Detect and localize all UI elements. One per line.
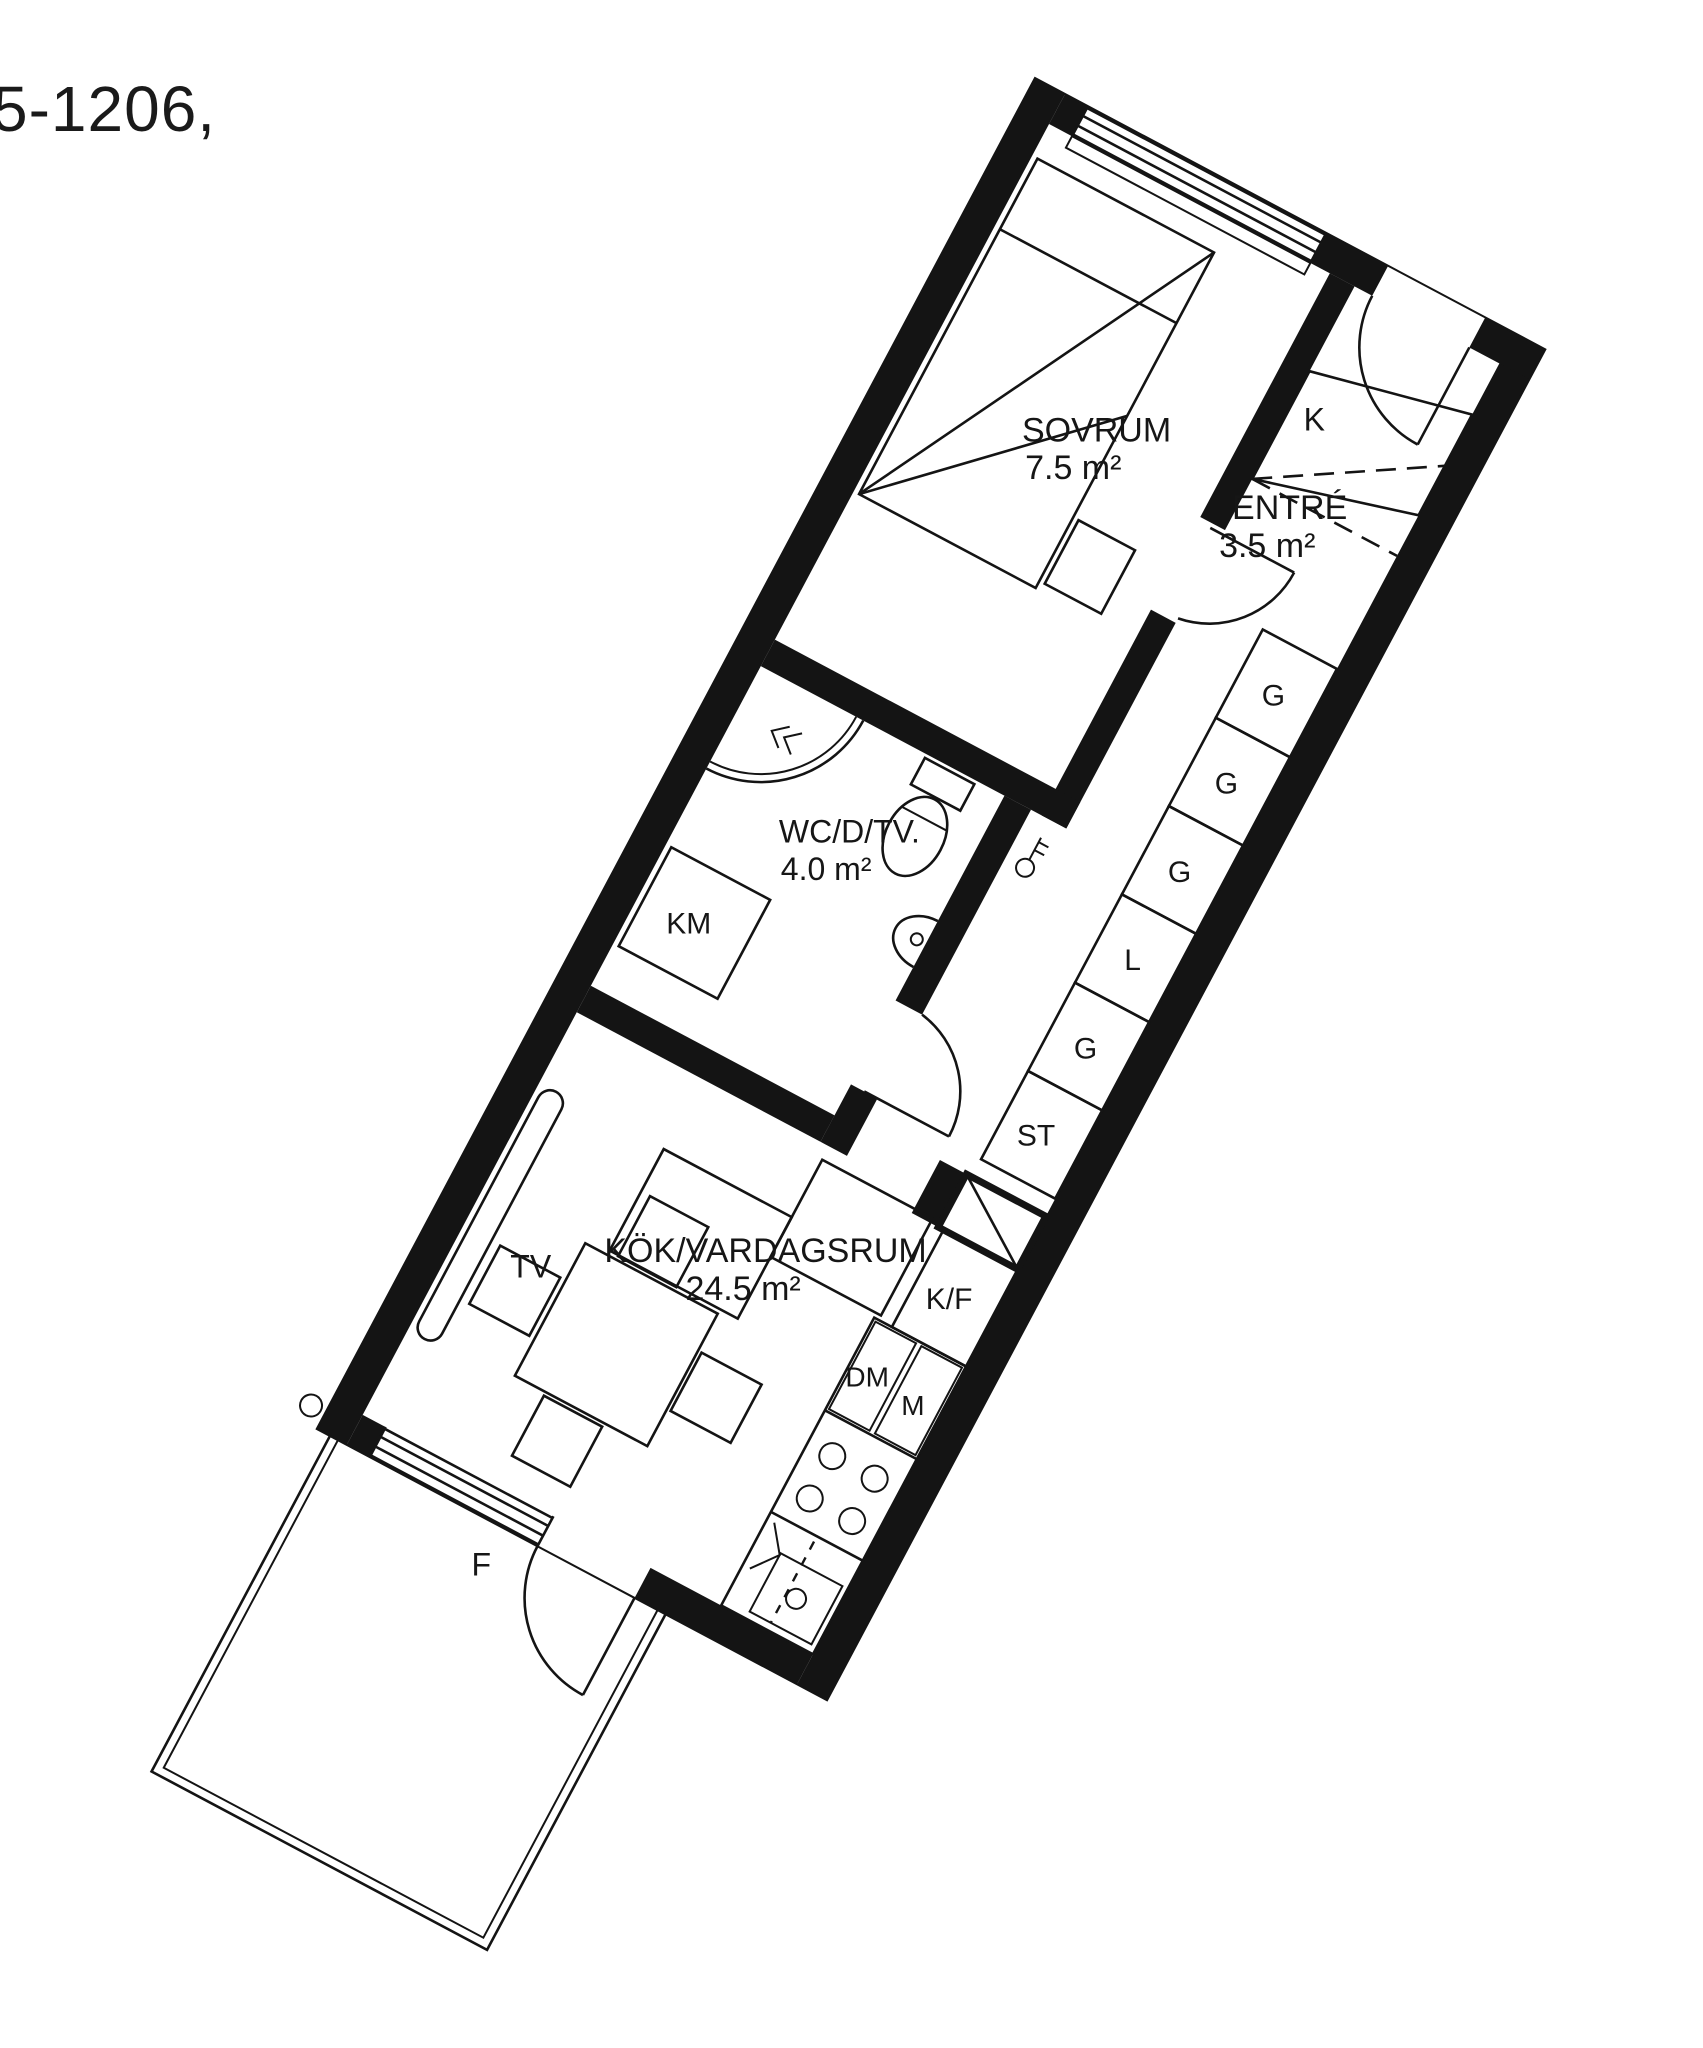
interior-walls bbox=[567, 124, 1420, 1227]
balcony-icon bbox=[114, 1391, 679, 1950]
room-label-kok: KÖK/VARDAGSRUM bbox=[604, 1232, 926, 1270]
outer-walls bbox=[317, 78, 1546, 1700]
room-area-sovrum: 7.5 m² bbox=[1025, 449, 1121, 487]
wall-sovrum-bottom bbox=[761, 640, 1081, 829]
floor-plan: SOVRUM 7.5 m² ENTRÉ 3.5 m² WC/D/TV. 4.0 … bbox=[0, 0, 1703, 2048]
room-label-wc: WC/D/TV. bbox=[779, 813, 920, 849]
entry-door-swing-icon bbox=[1321, 296, 1470, 445]
appliance-label-km: KM bbox=[666, 908, 711, 941]
wall-bottom-right bbox=[635, 1568, 813, 1684]
wall-wc-bottom bbox=[577, 986, 835, 1142]
appliance-label-dm: DM bbox=[845, 1361, 889, 1392]
room-area-entre: 3.5 m² bbox=[1219, 527, 1315, 565]
balcony-door-swing-icon bbox=[486, 1546, 635, 1695]
bedroom-window-icon bbox=[1066, 106, 1326, 274]
wardrobe-column bbox=[981, 629, 1337, 1198]
chair-icon bbox=[671, 1353, 762, 1443]
closet-label-g2: G bbox=[1215, 768, 1238, 801]
room-area-wc: 4.0 m² bbox=[781, 851, 872, 887]
closet-label-st: ST bbox=[1017, 1119, 1055, 1152]
wc-door-swing-icon bbox=[864, 1008, 993, 1137]
appliance-label-m: M bbox=[901, 1390, 924, 1421]
column-icon bbox=[296, 1391, 326, 1421]
closet-label-l: L bbox=[1124, 944, 1141, 977]
closet-label-g4: G bbox=[1074, 1033, 1097, 1066]
wall-right bbox=[797, 333, 1545, 1700]
livingroom-window-icon bbox=[370, 1427, 554, 1546]
chair-icon bbox=[512, 1396, 602, 1487]
nightstand-icon bbox=[1045, 520, 1135, 614]
window-label-f: F bbox=[471, 1546, 491, 1582]
closet-label-g1: G bbox=[1262, 679, 1285, 712]
closet-label-k: K bbox=[1304, 401, 1325, 437]
room-label-sovrum: SOVRUM bbox=[1022, 411, 1171, 449]
closet-label-g3: G bbox=[1168, 856, 1191, 889]
apartment-rotated-group: SOVRUM 7.5 m² ENTRÉ 3.5 m² WC/D/TV. 4.0 … bbox=[114, 65, 1545, 2035]
floor-plan-page: { "title": "5-1206,", "colors": { "ink":… bbox=[0, 0, 1703, 2048]
furniture-label-tv: TV bbox=[510, 1249, 552, 1285]
room-area-kok: 24.5 m² bbox=[686, 1270, 801, 1308]
dining-set bbox=[416, 1145, 815, 1544]
room-label-entre: ENTRÉ bbox=[1232, 489, 1347, 527]
key-icon bbox=[1013, 834, 1051, 881]
appliance-label-kf: K/F bbox=[926, 1283, 973, 1316]
